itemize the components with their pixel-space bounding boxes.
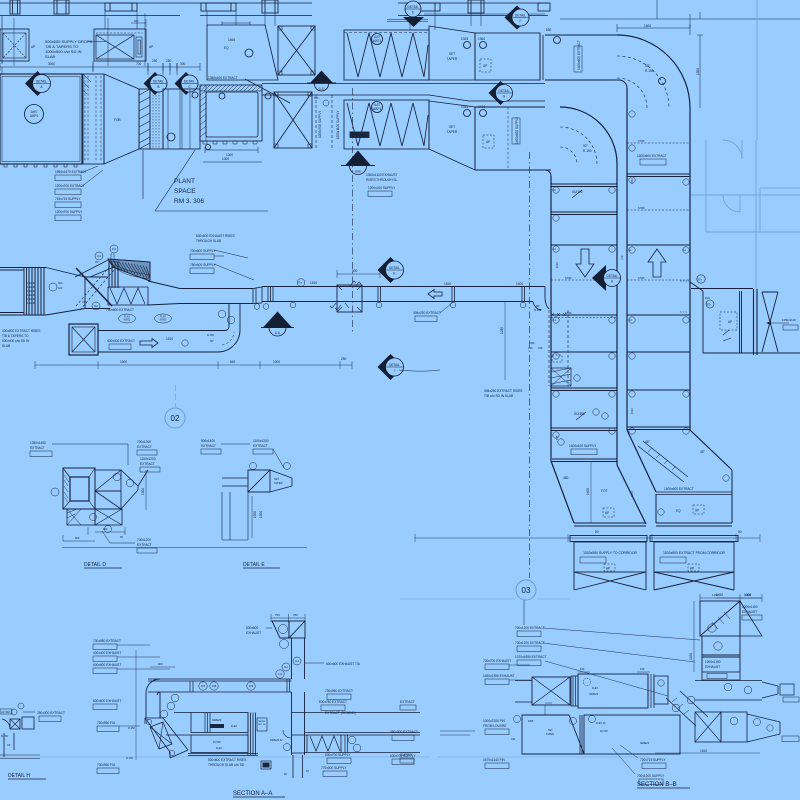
svg-text:DETAIL: DETAIL bbox=[515, 14, 526, 18]
svg-text:EXHAUST: EXHAUST bbox=[246, 631, 261, 635]
svg-text:1000: 1000 bbox=[745, 593, 752, 597]
svg-text:600x600: 600x600 bbox=[246, 626, 258, 630]
svg-text:DETAIL: DETAIL bbox=[389, 363, 400, 367]
svg-text:AP: AP bbox=[695, 509, 699, 513]
svg-text:DETAIL H: DETAIL H bbox=[8, 773, 30, 779]
svg-text:1200x700 EXTRACT: 1200x700 EXTRACT bbox=[55, 184, 85, 188]
svg-text:112: 112 bbox=[112, 247, 117, 251]
svg-text:250: 250 bbox=[341, 357, 347, 361]
svg-text:STIFF: STIFF bbox=[565, 277, 572, 280]
svg-text:DETAIL D: DETAIL D bbox=[84, 562, 106, 568]
svg-text:800: 800 bbox=[75, 536, 80, 540]
svg-text:1300: 1300 bbox=[141, 488, 145, 495]
svg-text:R.150: R.150 bbox=[645, 69, 654, 73]
svg-text:700x1200 EXTRACT: 700x1200 EXTRACT bbox=[515, 641, 545, 645]
svg-text:111: 111 bbox=[97, 254, 101, 258]
svg-text:EXTRACT: EXTRACT bbox=[140, 462, 155, 466]
svg-text:1400x600 SUPPLY: 1400x600 SUPPLY bbox=[515, 116, 519, 144]
svg-text:SUPPLY: SUPPLY bbox=[400, 753, 413, 757]
svg-text:1500: 1500 bbox=[696, 68, 700, 75]
svg-text:730x950 FIA: 730x950 FIA bbox=[97, 721, 116, 725]
svg-text:FLEX: FLEX bbox=[592, 687, 598, 690]
svg-text:1350x1100 EXHAUST: 1350x1100 EXHAUST bbox=[366, 173, 398, 177]
svg-text:1200x1150: 1200x1150 bbox=[705, 660, 721, 664]
svg-text:SU/100: SU/100 bbox=[572, 190, 583, 194]
svg-text:30MEZZ: 30MEZZ bbox=[640, 742, 650, 745]
svg-text:515: 515 bbox=[555, 435, 559, 440]
svg-text:EXTRACT (REWIND): EXTRACT (REWIND) bbox=[325, 711, 356, 715]
svg-text:1:10x60: 1:10x60 bbox=[27, 282, 36, 285]
svg-text:112: 112 bbox=[284, 666, 288, 669]
svg-text:1300: 1300 bbox=[253, 511, 257, 518]
svg-text:TAPER: TAPER bbox=[447, 57, 458, 61]
svg-text:1000: 1000 bbox=[273, 360, 280, 364]
svg-text:1:10x60: 1:10x60 bbox=[27, 298, 36, 301]
svg-text:700: 700 bbox=[293, 613, 298, 617]
svg-text:SLAB: SLAB bbox=[45, 54, 56, 59]
svg-text:30MEZZ 32: 30MEZZ 32 bbox=[270, 739, 283, 742]
svg-text:SET: SET bbox=[274, 477, 279, 481]
svg-text:EXHAUST: EXHAUST bbox=[742, 610, 757, 614]
svg-text:STIFF: STIFF bbox=[638, 207, 645, 210]
svg-text:500x400 c/w SD IN: 500x400 c/w SD IN bbox=[2, 339, 30, 343]
svg-text:FLEX 43: FLEX 43 bbox=[596, 722, 606, 725]
svg-text:250: 250 bbox=[538, 346, 543, 350]
svg-text:720: 720 bbox=[620, 255, 624, 260]
svg-text:FLEX: FLEX bbox=[216, 747, 222, 750]
svg-text:R.150: R.150 bbox=[1, 734, 8, 738]
svg-text:1400: 1400 bbox=[516, 282, 523, 286]
svg-text:T/B c/w SD IN SLAB: T/B c/w SD IN SLAB bbox=[484, 394, 513, 398]
svg-text:RISES THROUGH SL: RISES THROUGH SL bbox=[366, 178, 398, 182]
svg-text:EXTRACT: EXTRACT bbox=[137, 543, 152, 547]
svg-text:AC 500: AC 500 bbox=[1, 710, 10, 714]
svg-text:250: 250 bbox=[152, 59, 158, 63]
svg-text:1450x1350 EXHAUST: 1450x1350 EXHAUST bbox=[483, 674, 515, 678]
svg-text:E: E bbox=[412, 11, 414, 15]
svg-text:1:10x60: 1:10x60 bbox=[27, 286, 36, 289]
svg-text:SECTION A–A: SECTION A–A bbox=[233, 791, 272, 797]
svg-text:1350x100 EXTRACT: 1350x100 EXTRACT bbox=[208, 76, 238, 80]
svg-text:AP: AP bbox=[690, 567, 694, 571]
svg-text:110: 110 bbox=[94, 304, 99, 308]
svg-text:1400x600 EXTRACT: 1400x600 EXTRACT bbox=[637, 154, 667, 158]
svg-text:SET: SET bbox=[449, 52, 455, 56]
svg-text:RM 3. 306: RM 3. 306 bbox=[174, 198, 204, 205]
svg-text:600x600 EXHAUST: 600x600 EXHAUST bbox=[93, 663, 121, 667]
svg-text:700x700 EXHAUST: 700x700 EXHAUST bbox=[483, 659, 511, 663]
svg-text:AP: AP bbox=[728, 320, 732, 324]
svg-text:900: 900 bbox=[58, 281, 63, 285]
svg-text:F: F bbox=[520, 19, 522, 23]
svg-text:1200x1100 SUPPLY: 1200x1100 SUPPLY bbox=[336, 110, 340, 140]
svg-text:90°: 90° bbox=[645, 64, 651, 68]
svg-text:R10: R10 bbox=[705, 296, 710, 300]
svg-text:AP: AP bbox=[483, 64, 487, 68]
svg-text:1000x2100 FIN: 1000x2100 FIN bbox=[483, 719, 505, 723]
svg-text:SECT: SECT bbox=[273, 323, 282, 327]
svg-text:A-A: A-A bbox=[275, 331, 281, 335]
svg-text:1400x600 EXTRACT: 1400x600 EXTRACT bbox=[577, 40, 581, 70]
svg-text:77a: 77a bbox=[298, 281, 303, 285]
svg-text:D-D: D-D bbox=[319, 87, 325, 91]
svg-text:SET: SET bbox=[548, 729, 553, 732]
svg-text:O/E: O/E bbox=[511, 738, 516, 741]
svg-text:FOB: FOB bbox=[114, 118, 121, 122]
svg-text:02: 02 bbox=[171, 414, 180, 423]
svg-text:SYM 650: SYM 650 bbox=[352, 134, 365, 138]
svg-text:SECT: SECT bbox=[354, 162, 363, 166]
svg-text:730x950 EXTRACT: 730x950 EXTRACT bbox=[325, 689, 353, 693]
svg-text:850: 850 bbox=[546, 28, 552, 32]
svg-text:AP: AP bbox=[606, 567, 610, 571]
svg-text:700x1200: 700x1200 bbox=[137, 538, 151, 542]
svg-text:600x750 EXTRACT: 600x750 EXTRACT bbox=[319, 700, 347, 704]
svg-text:45°: 45° bbox=[82, 300, 86, 304]
svg-text:R.150: R.150 bbox=[207, 333, 214, 337]
svg-text:STIFF: STIFF bbox=[638, 140, 645, 143]
svg-text:WAT1: WAT1 bbox=[373, 39, 382, 43]
svg-text:1670x1440 FIN: 1670x1440 FIN bbox=[483, 758, 505, 762]
svg-text:1610: 1610 bbox=[700, 749, 707, 753]
svg-text:1200x700 SUPPLY: 1200x700 SUPPLY bbox=[318, 110, 322, 138]
svg-text:B-B: B-B bbox=[355, 170, 360, 174]
svg-text:750x600 EXTRACT: 750x600 EXTRACT bbox=[106, 308, 134, 312]
svg-text:EXTRACT: EXTRACT bbox=[201, 444, 216, 448]
svg-text:WG03: WG03 bbox=[160, 319, 167, 322]
svg-text:DETAIL: DETAIL bbox=[408, 5, 419, 9]
svg-text:108: 108 bbox=[212, 684, 217, 688]
svg-text:DETAIL: DETAIL bbox=[389, 266, 400, 270]
svg-text:37b: 37b bbox=[707, 303, 712, 307]
svg-text:50: 50 bbox=[595, 530, 599, 534]
svg-text:450: 450 bbox=[530, 341, 535, 345]
svg-text:R.150: R.150 bbox=[534, 308, 542, 312]
svg-text:EXHAUST: EXHAUST bbox=[705, 665, 720, 669]
svg-text:TAPER: TAPER bbox=[546, 733, 554, 736]
svg-text:SET: SET bbox=[449, 125, 455, 129]
svg-text:THROUGH SLAB: THROUGH SLAB bbox=[196, 239, 221, 243]
svg-text:1400x400 SUPPLY: 1400x400 SUPPLY bbox=[569, 444, 597, 448]
svg-text:DETAIL: DETAIL bbox=[499, 89, 510, 93]
svg-text:1510: 1510 bbox=[166, 337, 173, 341]
svg-text:45°: 45° bbox=[95, 260, 99, 264]
svg-text:1100x1200: 1100x1200 bbox=[253, 439, 269, 443]
svg-text:1450: 1450 bbox=[712, 593, 719, 597]
svg-text:SU/350: SU/350 bbox=[574, 412, 585, 416]
svg-text:500x600 EXTRACT RISES: 500x600 EXTRACT RISES bbox=[208, 758, 246, 762]
svg-text:1400x600 EXTRACT: 1400x600 EXTRACT bbox=[664, 487, 694, 491]
svg-text:1325: 1325 bbox=[461, 105, 468, 109]
svg-text:1350x2100: 1350x2100 bbox=[782, 318, 796, 322]
svg-text:WAP1: WAP1 bbox=[373, 107, 382, 111]
svg-text:TAPER: TAPER bbox=[447, 130, 458, 134]
svg-text:800x1400: 800x1400 bbox=[201, 439, 215, 443]
svg-text:720x715 SUPPLY: 720x715 SUPPLY bbox=[640, 758, 666, 762]
svg-text:DETAIL: DETAIL bbox=[36, 80, 47, 84]
svg-text:1200x1150: 1200x1150 bbox=[742, 605, 758, 609]
svg-text:715x715 SUPPLY: 715x715 SUPPLY bbox=[55, 197, 81, 201]
svg-text:30MEZZ: 30MEZZ bbox=[589, 693, 599, 696]
svg-text:45°: 45° bbox=[700, 450, 706, 454]
svg-text:900: 900 bbox=[158, 662, 163, 666]
svg-text:1510: 1510 bbox=[310, 281, 317, 285]
svg-text:50: 50 bbox=[738, 530, 742, 534]
svg-text:600: 600 bbox=[103, 527, 108, 531]
svg-text:1510: 1510 bbox=[630, 178, 634, 184]
svg-text:700x1200: 700x1200 bbox=[137, 440, 151, 444]
svg-text:850: 850 bbox=[314, 96, 319, 100]
svg-text:750: 750 bbox=[275, 613, 280, 617]
svg-text:250x300 EXTRACT: 250x300 EXTRACT bbox=[37, 711, 65, 715]
svg-text:1465: 1465 bbox=[228, 38, 235, 42]
svg-text:R.150: R.150 bbox=[583, 149, 592, 153]
svg-text:1510: 1510 bbox=[630, 491, 634, 497]
svg-text:PLANT: PLANT bbox=[174, 178, 195, 185]
svg-text:THROUGH SLAB c/w SD: THROUGH SLAB c/w SD bbox=[208, 763, 245, 767]
svg-text:AP: AP bbox=[486, 140, 490, 144]
svg-text:400x400 EXHAUST: 400x400 EXHAUST bbox=[93, 651, 121, 655]
svg-text:700x600 SUPPLY: 700x600 SUPPLY bbox=[190, 249, 216, 253]
svg-text:EXTRACT: EXTRACT bbox=[400, 700, 415, 704]
svg-text:3000: 3000 bbox=[48, 62, 55, 66]
svg-text:305x250 EXTRACT RISES: 305x250 EXTRACT RISES bbox=[484, 389, 522, 393]
svg-text:STIFF: STIFF bbox=[638, 277, 645, 280]
svg-text:1:10x60: 1:10x60 bbox=[27, 302, 36, 305]
svg-text:TAPER: TAPER bbox=[258, 720, 266, 723]
svg-text:300: 300 bbox=[180, 62, 186, 66]
svg-text:400x600 EXTRACT RISES: 400x600 EXTRACT RISES bbox=[2, 329, 40, 333]
svg-text:400x400 EXTRACT: 400x400 EXTRACT bbox=[107, 339, 135, 343]
svg-text:107: 107 bbox=[201, 684, 206, 688]
svg-text:1:10x60: 1:10x60 bbox=[27, 294, 36, 297]
svg-text:730x950 FIA: 730x950 FIA bbox=[97, 763, 116, 767]
svg-text:40 TAP: 40 TAP bbox=[213, 741, 221, 744]
svg-text:FOT: FOT bbox=[601, 489, 607, 493]
svg-text:250x300 EXTRACT: 250x300 EXTRACT bbox=[390, 730, 418, 734]
svg-text:EXTRACT: EXTRACT bbox=[30, 446, 45, 450]
svg-text:1500x500 EXTRACT FROM CORRIDOR: 1500x500 EXTRACT FROM CORRIDOR bbox=[663, 551, 725, 555]
svg-text:EQ: EQ bbox=[676, 509, 681, 513]
svg-text:37a: 37a bbox=[698, 278, 703, 282]
svg-text:1300: 1300 bbox=[222, 157, 229, 161]
svg-text:1505: 1505 bbox=[528, 720, 534, 723]
svg-text:109: 109 bbox=[249, 684, 254, 688]
svg-text:SLAB: SLAB bbox=[2, 344, 10, 348]
svg-text:1400: 1400 bbox=[586, 488, 590, 495]
svg-text:1:10x60: 1:10x60 bbox=[27, 290, 36, 293]
svg-text:TAPER: TAPER bbox=[274, 481, 283, 485]
svg-text:600: 600 bbox=[352, 269, 358, 273]
svg-text:EXTRACT: EXTRACT bbox=[253, 444, 268, 448]
svg-text:WG02: WG02 bbox=[124, 319, 131, 322]
svg-text:1950x1670 EXTRACT: 1950x1670 EXTRACT bbox=[55, 170, 87, 174]
svg-text:100: 100 bbox=[58, 286, 63, 290]
svg-text:700x1200 EXTRACT: 700x1200 EXTRACT bbox=[515, 626, 545, 630]
svg-text:AP: AP bbox=[31, 45, 35, 49]
svg-text:1510: 1510 bbox=[555, 262, 559, 268]
svg-text:40 TAP: 40 TAP bbox=[600, 730, 608, 733]
svg-text:700x1200 SUPPLY: 700x1200 SUPPLY bbox=[637, 774, 665, 778]
svg-text:113: 113 bbox=[295, 660, 299, 663]
svg-text:305x250 EXTRACT: 305x250 EXTRACT bbox=[413, 311, 441, 315]
svg-text:R.150: R.150 bbox=[128, 726, 135, 730]
svg-text:1450: 1450 bbox=[689, 653, 693, 660]
svg-text:845: 845 bbox=[230, 360, 236, 364]
svg-text:T/B & TAPERS TO: T/B & TAPERS TO bbox=[2, 334, 29, 338]
svg-text:600x600 EXHAUST RISES: 600x600 EXHAUST RISES bbox=[196, 234, 235, 238]
svg-text:1200x100 SUPPLY: 1200x100 SUPPLY bbox=[368, 186, 396, 190]
svg-text:SECT: SECT bbox=[317, 80, 326, 84]
svg-text:EXTRACT: EXTRACT bbox=[137, 445, 152, 449]
svg-text:DETAIL: DETAIL bbox=[153, 80, 164, 84]
svg-text:DETAIL: DETAIL bbox=[607, 274, 618, 278]
svg-text:1510: 1510 bbox=[630, 408, 634, 414]
svg-text:AP: AP bbox=[7, 743, 11, 747]
svg-text:1370x1650 EXTRACT: 1370x1650 EXTRACT bbox=[515, 655, 547, 659]
svg-text:250: 250 bbox=[166, 59, 172, 63]
svg-text:150: 150 bbox=[580, 667, 585, 671]
svg-text:600x600 EXHAUST: 600x600 EXHAUST bbox=[93, 699, 121, 703]
svg-text:AP: AP bbox=[149, 45, 153, 49]
svg-text:600x700 SUPPLY: 600x700 SUPPLY bbox=[325, 753, 351, 757]
svg-text:1280: 1280 bbox=[500, 327, 504, 334]
svg-text:750x600 SUPPLY: 750x600 SUPPLY bbox=[190, 263, 216, 267]
svg-text:150: 150 bbox=[640, 667, 645, 671]
svg-text:SECTION B–B: SECTION B–B bbox=[637, 782, 677, 788]
svg-text:FROM LOUVRE: FROM LOUVRE bbox=[483, 724, 506, 728]
svg-text:AHP1: AHP1 bbox=[30, 114, 39, 118]
svg-text:400: 400 bbox=[134, 19, 139, 23]
svg-text:STIFF: STIFF bbox=[565, 312, 572, 315]
svg-text:480: 480 bbox=[563, 476, 569, 480]
svg-text:SPACE: SPACE bbox=[174, 188, 196, 195]
svg-text:1510: 1510 bbox=[444, 282, 451, 286]
svg-text:1200x700 SUPPLY: 1200x700 SUPPLY bbox=[55, 210, 83, 214]
svg-text:1500x500 SUPPLY TO CORRIDOR: 1500x500 SUPPLY TO CORRIDOR bbox=[583, 551, 637, 555]
svg-text:FLEX: FLEX bbox=[231, 725, 237, 728]
svg-text:700: 700 bbox=[136, 62, 142, 66]
svg-text:1600: 1600 bbox=[644, 24, 651, 28]
svg-text:600x600 EXHAUST T/A: 600x600 EXHAUST T/A bbox=[326, 662, 361, 666]
svg-text:1350x1450: 1350x1450 bbox=[30, 441, 46, 445]
svg-text:30MEZZ: 30MEZZ bbox=[212, 719, 222, 722]
svg-text:DETAIL: DETAIL bbox=[184, 80, 195, 84]
svg-text:1300: 1300 bbox=[120, 360, 127, 364]
svg-text:1500: 1500 bbox=[259, 511, 263, 518]
svg-text:250: 250 bbox=[528, 346, 533, 350]
svg-text:1100x1200: 1100x1200 bbox=[140, 457, 156, 461]
svg-text:90°: 90° bbox=[583, 144, 589, 148]
svg-text:R.150: R.150 bbox=[126, 756, 133, 760]
svg-text:1325: 1325 bbox=[461, 37, 468, 41]
svg-text:103 FLEX: 103 FLEX bbox=[211, 725, 222, 728]
svg-text:730x950 EXTRACT: 730x950 EXTRACT bbox=[93, 639, 121, 643]
svg-text:45°: 45° bbox=[645, 440, 651, 444]
svg-text:770x300 SUPPLY: 770x300 SUPPLY bbox=[321, 766, 347, 770]
svg-text:90°: 90° bbox=[210, 339, 214, 343]
svg-text:AP: AP bbox=[605, 511, 609, 515]
svg-text:03: 03 bbox=[522, 586, 531, 595]
svg-text:EQ: EQ bbox=[224, 46, 229, 50]
svg-text:B: B bbox=[157, 85, 159, 89]
svg-text:SET 10: SET 10 bbox=[258, 724, 266, 726]
svg-text:1360: 1360 bbox=[478, 37, 485, 41]
svg-text:DETAIL E: DETAIL E bbox=[243, 562, 265, 568]
